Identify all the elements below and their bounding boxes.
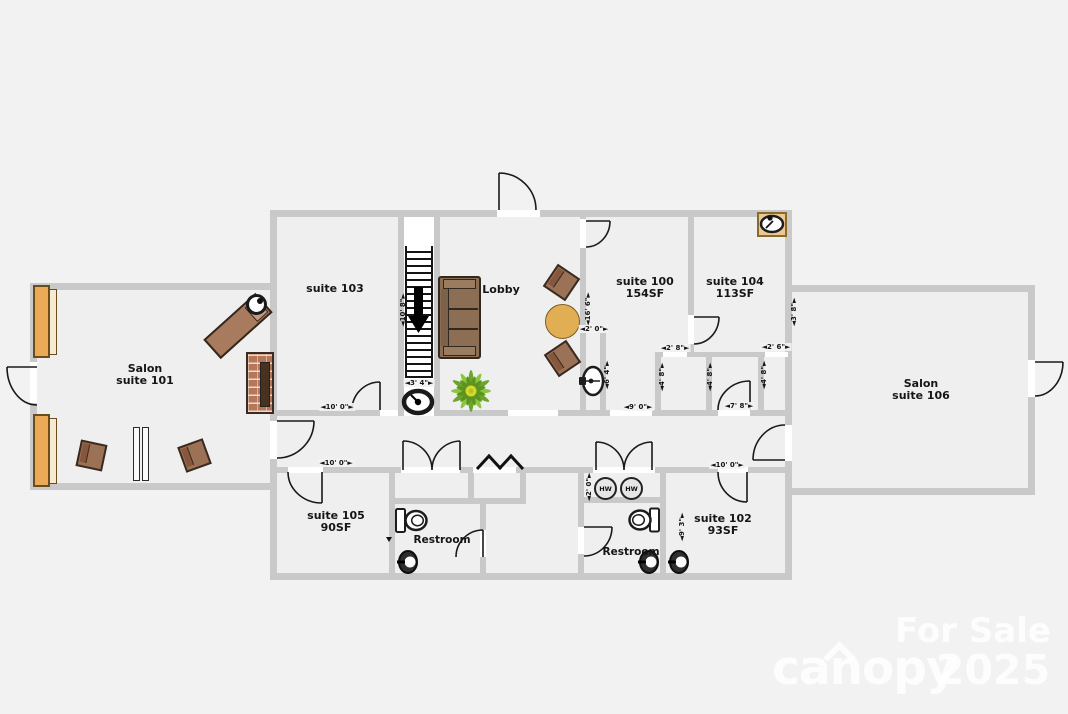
door-arc xyxy=(718,472,747,502)
dim-label: ◄4' 8"► xyxy=(760,361,768,390)
door-arc xyxy=(694,317,719,344)
room-label-restroom-west: Restroom xyxy=(413,534,470,546)
dim-label: ◄9' 3"► xyxy=(678,513,686,542)
door-arc xyxy=(753,425,785,460)
dim-label: ◄10' 0"► xyxy=(709,461,745,469)
room-label-suite-103: suite 103 xyxy=(306,283,364,295)
room-label-suite-104: suite 104 113SF xyxy=(706,276,764,300)
dim-label: ◄16' 6"► xyxy=(584,292,592,326)
double-door-arc xyxy=(596,442,652,470)
room-label-line: 154SF xyxy=(616,288,674,300)
dim-label: ◄3' 8"► xyxy=(790,298,798,327)
door-arc xyxy=(288,472,322,503)
dim-label: ◄2' 6"► xyxy=(761,343,792,351)
door-arc xyxy=(586,221,610,247)
plan-graphics xyxy=(0,0,1068,714)
room-label-line: Restroom xyxy=(602,546,659,558)
dim-label: ◄9' 0"► xyxy=(623,403,654,411)
dim-label: ◄4' 8"► xyxy=(658,363,666,392)
room-label-line: Lobby xyxy=(482,284,520,296)
dim-label: ◄2' 0"► xyxy=(585,473,593,502)
room-label-line: 113SF xyxy=(706,288,764,300)
door-arc xyxy=(352,382,380,410)
door-arc xyxy=(499,173,536,210)
vanity-sink-bowl xyxy=(761,215,783,232)
room-label-line: 93SF xyxy=(694,525,752,537)
pedestal-sink xyxy=(579,367,603,395)
room-label-suite-105: suite 105 90SF xyxy=(307,510,365,534)
dim-label: ◄2' 0"► xyxy=(579,325,610,333)
room-label-line: 90SF xyxy=(307,522,365,534)
dim-label: ◄2' 8"► xyxy=(660,344,691,352)
dim-label: ◄6' 4"► xyxy=(603,361,611,390)
basin-sink xyxy=(668,551,688,573)
watermark-brand: canopy xyxy=(772,641,956,696)
room-label-restroom-east: Restroom xyxy=(602,546,659,558)
chevron-icon xyxy=(477,456,501,469)
potted-plant xyxy=(451,370,491,412)
stair-base-sink xyxy=(404,391,432,413)
dim-label: ◄10' 0"► xyxy=(318,459,354,467)
room-label-suite-100: suite 100 154SF xyxy=(616,276,674,300)
dim-label: ◄3' 4"► xyxy=(404,379,435,387)
room-label-line: Restroom xyxy=(413,534,470,546)
toilet xyxy=(630,509,660,532)
room-label-lobby: Lobby xyxy=(482,284,520,296)
closet-chevrons xyxy=(477,456,523,469)
door-arc xyxy=(277,421,314,458)
room-label-salon-106: Salon suite 106 xyxy=(892,378,950,402)
dim-label: ◄4' 8"► xyxy=(706,363,714,392)
dim-label: ◄10' 8"► xyxy=(399,293,407,327)
room-label-line: suite 103 xyxy=(306,283,364,295)
room-label-salon-101: Salon suite 101 xyxy=(116,363,174,387)
watermark-year: 2025 xyxy=(936,646,1050,694)
door-arc xyxy=(1035,362,1063,396)
stairs-down-arrow-icon xyxy=(408,287,429,333)
room-label-suite-102: suite 102 93SF xyxy=(694,513,752,537)
room-label-line: suite 101 xyxy=(116,375,174,387)
room-label-line: suite 106 xyxy=(892,390,950,402)
door-arc xyxy=(7,367,37,405)
chevron-icon xyxy=(499,456,523,469)
dim-label: ◄7' 8"► xyxy=(724,402,755,410)
basin-sink xyxy=(397,551,417,573)
floor-plan: HW HW xyxy=(0,0,1068,714)
dim-label: ◄10' 0"► xyxy=(319,403,355,411)
double-door-arc xyxy=(403,441,460,470)
